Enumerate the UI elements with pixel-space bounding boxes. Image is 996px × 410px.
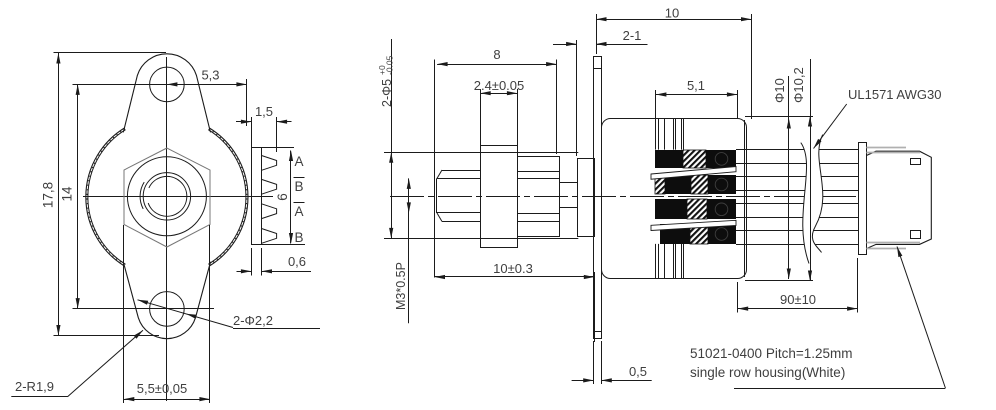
svg-text:A: A xyxy=(294,204,303,219)
svg-text:B: B xyxy=(294,230,303,245)
svg-text:10±0.3: 10±0.3 xyxy=(493,261,533,276)
svg-text:2-Φ2,2: 2-Φ2,2 xyxy=(233,313,273,328)
svg-text:-0.05: -0.05 xyxy=(385,55,395,75)
svg-text:B: B xyxy=(294,179,303,194)
svg-text:single row housing(White): single row housing(White) xyxy=(690,365,845,380)
svg-text:2-1: 2-1 xyxy=(623,28,642,43)
svg-text:2-R1,9: 2-R1,9 xyxy=(15,379,54,394)
svg-text:5,1: 5,1 xyxy=(687,78,705,93)
svg-text:5,3: 5,3 xyxy=(201,68,219,83)
svg-text:6: 6 xyxy=(275,193,290,201)
svg-text:8: 8 xyxy=(493,47,500,62)
svg-text:2-Φ5: 2-Φ5 xyxy=(380,79,394,107)
svg-text:5,5±0,05: 5,5±0,05 xyxy=(137,381,188,396)
svg-text:M3*0.5P: M3*0.5P xyxy=(394,262,408,310)
svg-text:14: 14 xyxy=(60,186,75,202)
svg-text:17,8: 17,8 xyxy=(41,182,56,208)
svg-text:90±10: 90±10 xyxy=(780,292,816,307)
svg-text:Φ10: Φ10 xyxy=(772,78,787,103)
svg-text:0,6: 0,6 xyxy=(288,254,306,269)
svg-text:1,5: 1,5 xyxy=(255,104,273,119)
svg-text:0,5: 0,5 xyxy=(629,364,647,379)
svg-text:10: 10 xyxy=(665,6,679,21)
svg-text:Φ10,2: Φ10,2 xyxy=(791,67,806,103)
svg-text:51021-0400 Pitch=1.25mm: 51021-0400 Pitch=1.25mm xyxy=(690,346,852,361)
svg-text:UL1571 AWG30: UL1571 AWG30 xyxy=(848,87,941,102)
svg-text:2.4±0.05: 2.4±0.05 xyxy=(474,78,525,93)
svg-text:A: A xyxy=(294,154,303,169)
